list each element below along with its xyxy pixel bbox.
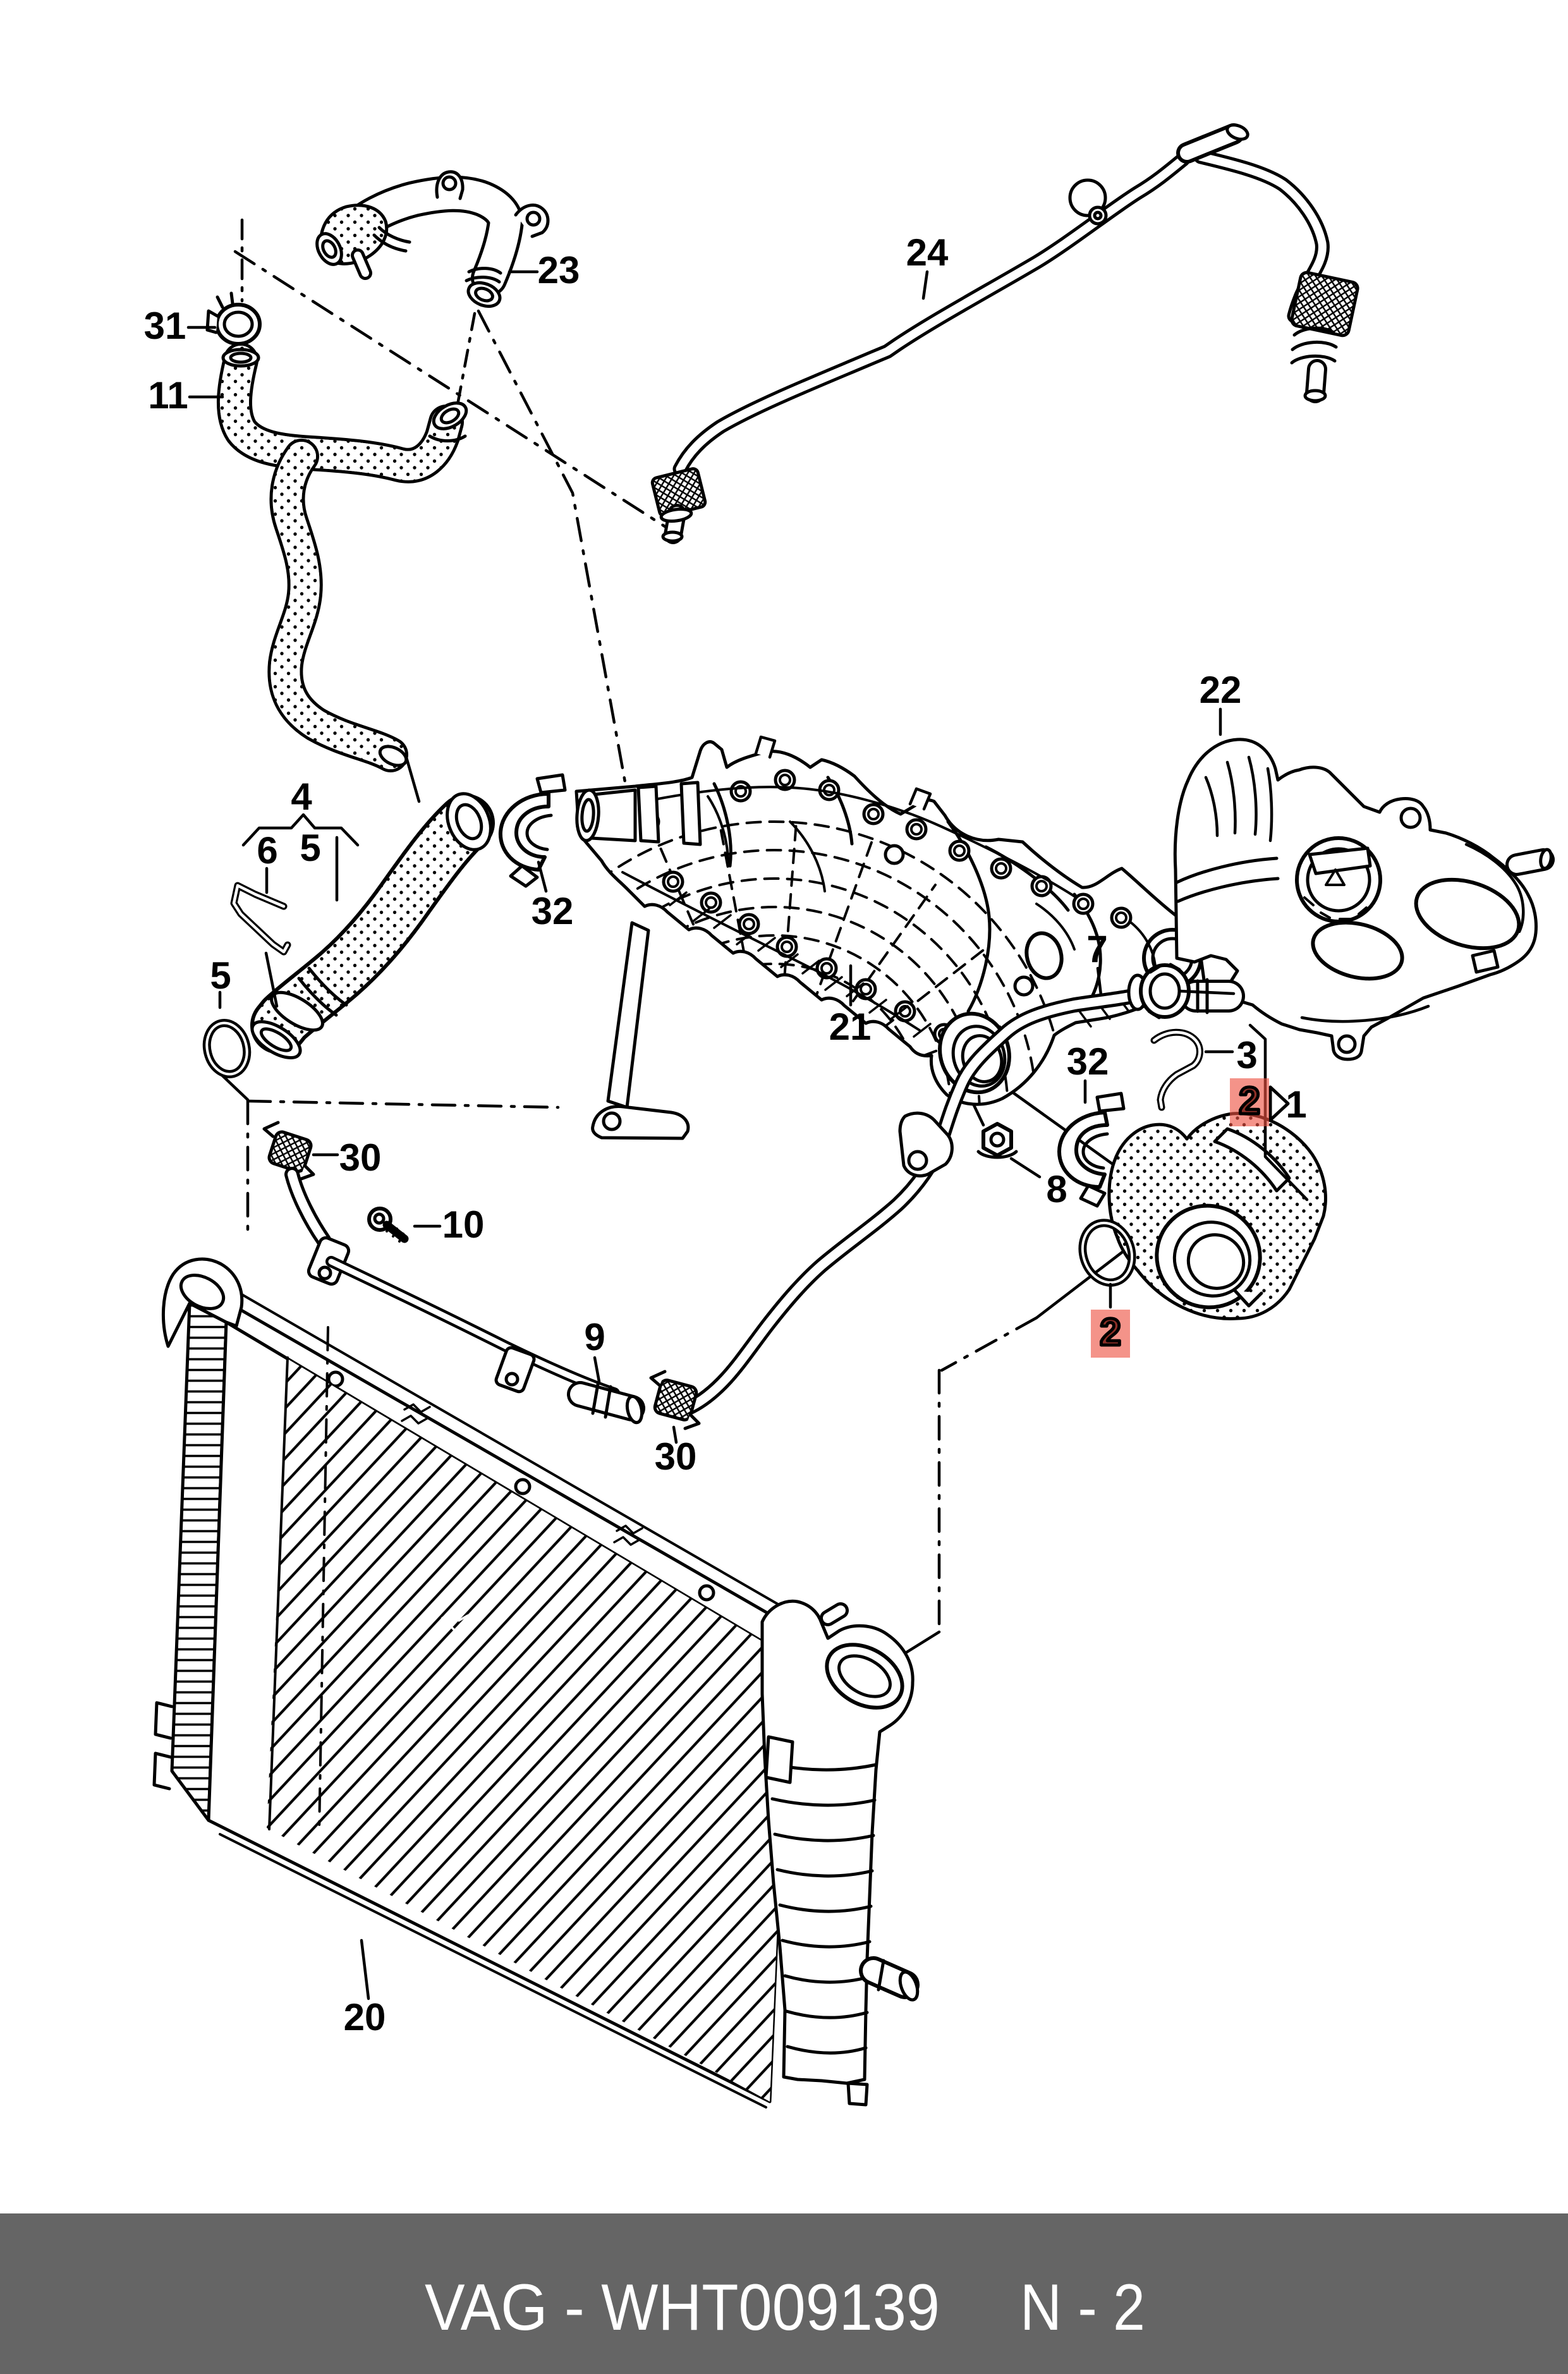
svg-text:30: 30 xyxy=(339,1136,382,1179)
svg-text:4: 4 xyxy=(291,776,312,818)
svg-text:31: 31 xyxy=(144,305,186,347)
svg-text:8: 8 xyxy=(1046,1168,1067,1210)
svg-text:32: 32 xyxy=(1067,1040,1109,1083)
svg-text:3: 3 xyxy=(1236,1034,1257,1076)
svg-text:7: 7 xyxy=(1086,928,1107,970)
svg-text:10: 10 xyxy=(442,1203,485,1246)
svg-text:22: 22 xyxy=(1200,669,1242,711)
svg-text:24: 24 xyxy=(906,231,949,274)
svg-text:21: 21 xyxy=(829,1006,872,1048)
svg-text:VAG - WHT009139: VAG - WHT009139 xyxy=(425,2271,940,2344)
svg-text:6: 6 xyxy=(257,829,277,872)
svg-text:23: 23 xyxy=(538,249,580,291)
svg-text:5: 5 xyxy=(210,954,231,997)
svg-text:20: 20 xyxy=(344,1996,386,2038)
svg-text:11: 11 xyxy=(148,374,188,417)
svg-text:N - 2: N - 2 xyxy=(1020,2271,1145,2344)
svg-text:5: 5 xyxy=(300,827,320,869)
svg-text:1: 1 xyxy=(1285,1083,1306,1126)
svg-text:9: 9 xyxy=(584,1316,605,1358)
svg-text:30: 30 xyxy=(655,1435,697,1478)
svg-text:32: 32 xyxy=(532,890,574,932)
svg-text:2: 2 xyxy=(1239,1080,1260,1122)
svg-text:2: 2 xyxy=(1100,1311,1121,1353)
